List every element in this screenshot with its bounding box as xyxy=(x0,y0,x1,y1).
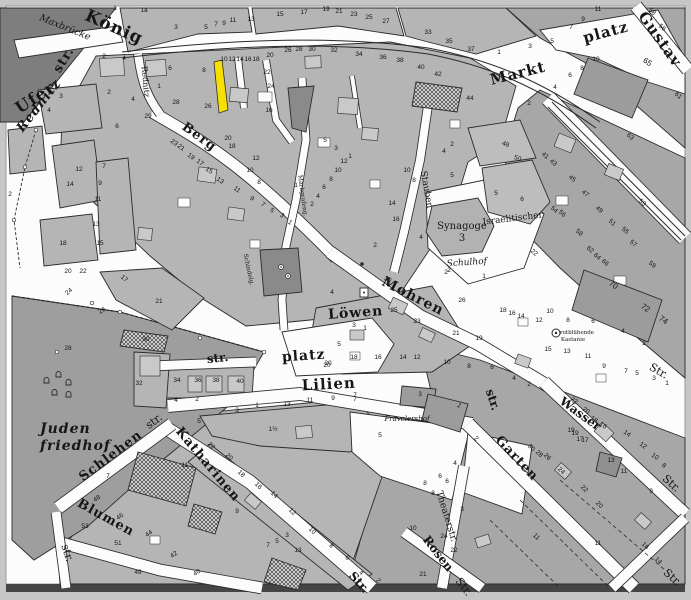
house-number: 2 xyxy=(310,201,314,208)
house-number: 11 xyxy=(95,196,102,203)
well-dot xyxy=(280,266,282,268)
courtyard xyxy=(258,92,272,102)
house-number: 13 xyxy=(294,547,302,554)
courtyard xyxy=(370,180,380,188)
church-dark-building xyxy=(260,248,302,296)
house-number: 10 xyxy=(246,167,254,174)
house-number: 17 xyxy=(576,436,584,443)
parcel-building xyxy=(100,57,125,76)
house-number: 26 xyxy=(284,47,292,54)
house-number: 19 xyxy=(567,427,575,434)
house-number: 11 xyxy=(595,540,602,547)
house-number: 22 xyxy=(450,547,458,554)
house-number: 5 xyxy=(635,370,639,377)
house-number: 13 xyxy=(283,401,291,408)
house-number: 36 xyxy=(379,54,387,61)
street-label-kastanie: Kastanie xyxy=(561,337,585,343)
house-number: 14 xyxy=(388,200,396,207)
house-number: 7 xyxy=(102,163,106,170)
house-number: 10 xyxy=(220,56,228,63)
courtyard xyxy=(450,120,460,128)
house-number: 51 xyxy=(114,540,122,547)
house-number: 22 xyxy=(263,69,271,76)
house-number: 21 xyxy=(419,571,427,578)
parcel-building xyxy=(227,207,245,221)
house-number: 1 xyxy=(482,273,486,280)
house-number: 10 xyxy=(409,525,417,532)
boundary-marker xyxy=(55,350,59,354)
house-number: 10 xyxy=(592,56,600,63)
house-number: 8 xyxy=(412,177,416,184)
lilienstrasse-west-stub xyxy=(150,362,256,366)
house-number: 2 xyxy=(195,396,199,403)
house-number: 24 xyxy=(267,83,275,90)
house-number: 17 xyxy=(300,9,308,16)
parcel-building xyxy=(338,97,359,114)
house-number: 8 xyxy=(467,363,471,370)
house-number: 23 xyxy=(413,318,421,325)
boundary-marker xyxy=(118,310,122,314)
street-label-platz: platz xyxy=(281,347,326,366)
house-number: 16 xyxy=(392,216,400,223)
house-number: 5 xyxy=(275,538,279,545)
house-number: 9 xyxy=(331,395,335,402)
parcel-building xyxy=(138,227,153,240)
courtyard xyxy=(556,196,568,205)
house-number: 18 xyxy=(59,240,67,247)
house-number: 16 xyxy=(374,354,382,361)
house-number: 1½ xyxy=(268,425,278,433)
house-number: 10 xyxy=(546,308,554,315)
house-number: 3 xyxy=(285,532,289,539)
house-number: 21 xyxy=(335,8,343,15)
house-number: 3 xyxy=(174,24,178,31)
house-number: 6 xyxy=(568,72,572,79)
house-number: 8 xyxy=(329,176,333,183)
house-number: 6 xyxy=(322,184,326,191)
street-label-synagoge: Synagoge xyxy=(437,221,487,232)
house-number: 14 xyxy=(66,181,74,188)
house-number: 16 xyxy=(265,107,273,114)
house-number: 11 xyxy=(307,397,314,404)
house-number: 2 xyxy=(8,191,12,198)
house-number: 6 xyxy=(168,65,172,72)
house-number: 12 xyxy=(75,166,83,173)
house-number: 10 xyxy=(443,359,451,366)
house-number: 7 xyxy=(106,473,110,480)
house-number: 13 xyxy=(92,221,100,228)
house-number: 7 xyxy=(353,392,357,399)
house-number: 40 xyxy=(417,64,425,71)
house-number: 12 xyxy=(228,56,236,63)
house-number: 18 xyxy=(350,354,358,361)
house-number: 2 xyxy=(373,242,377,249)
courtyard xyxy=(250,240,260,248)
house-number: 2 xyxy=(107,89,111,96)
house-number: 9 xyxy=(222,20,226,27)
boundary-marker xyxy=(34,128,38,132)
house-number: 7 xyxy=(624,368,628,375)
house-number: 4 xyxy=(122,55,126,62)
house-number: 33 xyxy=(424,29,432,36)
house-number: 16 xyxy=(244,56,252,63)
well-dot xyxy=(287,275,289,277)
house-number: 5 xyxy=(450,172,454,179)
house-number: 28 xyxy=(172,99,180,106)
street-label-3: 3 xyxy=(459,233,465,244)
house-number: 4 xyxy=(512,375,516,382)
house-number: 12 xyxy=(413,354,421,361)
house-number: 34 xyxy=(355,51,363,58)
house-number: 1 xyxy=(113,5,117,12)
house-number: 10 xyxy=(334,167,342,174)
house-number: 12 xyxy=(252,155,260,162)
house-number: 36 xyxy=(194,377,202,384)
house-number: 20 xyxy=(64,268,72,275)
house-number: 18 xyxy=(499,307,507,314)
house-number: 29 xyxy=(144,113,152,120)
house-number: 27 xyxy=(382,18,390,25)
house-number: 12 xyxy=(535,317,543,324)
marker-dot xyxy=(360,262,364,266)
house-number: 18 xyxy=(252,56,260,63)
house-number: 8 xyxy=(423,480,427,487)
house-number: 5 xyxy=(323,137,327,144)
house-number: 9 xyxy=(602,363,606,370)
house-number: 2 xyxy=(642,340,646,347)
house-number: 4 xyxy=(316,193,320,200)
house-number: 10 xyxy=(403,167,411,174)
house-number: 28 xyxy=(64,345,72,352)
house-number: 9 xyxy=(649,488,653,495)
house-number: 4 xyxy=(442,148,446,155)
house-number: 9 xyxy=(581,16,585,23)
house-number: 38 xyxy=(396,57,404,64)
house-number: 32 xyxy=(330,47,338,54)
house-number: 26 xyxy=(458,297,466,304)
house-number: 34 xyxy=(173,377,181,384)
house-number: 30 xyxy=(142,336,150,343)
house-number: 44 xyxy=(466,95,474,102)
house-number: 53 xyxy=(81,523,89,530)
city-map: 11a3579111315171921232527333537135791158… xyxy=(0,0,691,600)
house-number: 11 xyxy=(621,468,628,475)
house-number: 12 xyxy=(340,158,348,165)
house-number: 16 xyxy=(508,310,516,317)
house-number: 3 xyxy=(235,407,239,414)
boundary-marker xyxy=(262,350,266,354)
house-number: 3 xyxy=(59,93,63,100)
house-number: 35 xyxy=(445,38,453,45)
house-number: 13 xyxy=(247,16,255,23)
house-number: 37 xyxy=(467,46,475,53)
house-number: 15 xyxy=(544,346,552,353)
house-number: 5 xyxy=(378,432,382,439)
house-number: 5 xyxy=(494,190,498,197)
parcel-building xyxy=(229,87,248,103)
house-number: 1 xyxy=(363,325,367,332)
house-number: 4 xyxy=(453,460,457,467)
house-number: 2 xyxy=(527,100,531,107)
house-number: 8 xyxy=(566,317,570,324)
house-number: 21 xyxy=(155,298,163,305)
house-number: 2 xyxy=(444,269,448,276)
house-number: 7 xyxy=(214,21,218,28)
house-number: 2 xyxy=(102,53,106,60)
house-number: 1 xyxy=(255,402,259,409)
house-number: 6 xyxy=(115,123,119,130)
boundary-marker xyxy=(90,301,94,305)
house-number: 18 xyxy=(228,143,236,150)
house-number: 11 xyxy=(230,17,237,24)
parcel-building xyxy=(140,356,160,376)
chestnut-tree-dot xyxy=(555,332,557,334)
house-number: 7 xyxy=(569,24,573,31)
boundary-marker xyxy=(12,218,16,222)
house-number: 9 xyxy=(98,180,102,187)
house-number: 28 xyxy=(295,46,303,53)
house-number: 1 xyxy=(497,49,501,56)
courtyard xyxy=(596,374,606,382)
house-number: 1 xyxy=(157,83,161,90)
parcel-building xyxy=(350,330,364,340)
house-number: 2 xyxy=(527,381,531,388)
house-number: 11 xyxy=(182,462,189,469)
house-number: 8 xyxy=(257,179,261,186)
house-number: 3 xyxy=(334,145,338,152)
house-number: 25 xyxy=(365,14,373,21)
courtyard xyxy=(150,536,160,544)
house-number: 3 xyxy=(460,506,464,513)
monument-dot xyxy=(363,292,365,294)
street-label-lilien: Lilien xyxy=(301,374,356,395)
house-number: 9 xyxy=(235,508,239,515)
house-number: 25 xyxy=(390,307,398,314)
house-number: 20 xyxy=(266,52,274,59)
house-number: 6 xyxy=(445,478,449,485)
house-number: 5 xyxy=(197,418,201,425)
street-label-fravelershof: Fravelershof xyxy=(383,415,431,423)
map-scan-page: 11a3579111315171921232527333537135791158… xyxy=(0,0,691,600)
house-number: 6 xyxy=(490,364,494,371)
house-number: 42 xyxy=(434,71,442,78)
house-number: 14 xyxy=(236,56,244,63)
house-number: 11 xyxy=(585,353,592,360)
house-number: 30 xyxy=(308,46,316,53)
house-number: 15 xyxy=(276,11,284,18)
house-number: 49 xyxy=(134,569,142,576)
parcel-building xyxy=(362,127,379,140)
house-number: 8 xyxy=(202,67,206,74)
house-number: 3 xyxy=(528,43,532,50)
house-number: 4 xyxy=(174,397,178,404)
house-number: 32 xyxy=(135,380,143,387)
street-label-friedhof: friedhof xyxy=(39,438,113,454)
parcel-building xyxy=(305,56,321,69)
house-number: 5 xyxy=(337,341,341,348)
boundary-marker xyxy=(198,336,202,340)
house-number: 4 xyxy=(47,107,51,114)
house-number: 5 xyxy=(204,24,208,31)
house-number: 38 xyxy=(212,377,220,384)
house-number: 14 xyxy=(517,313,525,320)
house-number: 5 xyxy=(550,38,554,45)
house-number: 4 xyxy=(553,84,557,91)
house-number: 8 xyxy=(580,65,584,72)
house-number: 7 xyxy=(266,542,270,549)
house-number: 4 xyxy=(419,234,423,241)
courtyard xyxy=(178,198,190,207)
house-number: 6 xyxy=(591,318,595,325)
house-number: 21 xyxy=(452,330,460,337)
house-number: 6 xyxy=(520,196,524,203)
street-label-rotbl-hende: rotblühende xyxy=(560,330,594,336)
house-number: 13 xyxy=(607,457,615,464)
house-number: 1 xyxy=(665,380,669,387)
house-number: 11 xyxy=(595,6,602,13)
house-number: 4 xyxy=(621,328,625,335)
house-number: 3 xyxy=(418,391,422,398)
street-label-juden: Juden xyxy=(37,421,91,437)
house-number: 14 xyxy=(399,354,407,361)
parcel-building xyxy=(296,425,313,438)
block-ufer-4 xyxy=(40,214,98,266)
house-number: 3 xyxy=(352,322,356,329)
boundary-marker xyxy=(23,165,27,169)
house-number: 26 xyxy=(204,103,212,110)
house-number: 13 xyxy=(563,348,571,355)
house-number: 22 xyxy=(79,268,87,275)
house-number: 40 xyxy=(236,378,244,385)
house-number: 1 xyxy=(348,153,352,160)
house-number: 4 xyxy=(330,289,334,296)
house-number: 15 xyxy=(96,240,104,247)
house-number: 6 xyxy=(438,473,442,480)
house-number: 19 xyxy=(475,335,483,342)
house-number: 2 xyxy=(450,141,454,148)
city-map-container: 11a3579111315171921232527333537135791158… xyxy=(0,0,691,600)
house-number: 19 xyxy=(322,6,330,13)
house-number: 20 xyxy=(224,135,232,142)
house-number: 23 xyxy=(350,11,358,18)
house-number: 1a xyxy=(140,7,148,14)
street-label-str-: str. xyxy=(206,350,229,366)
house-number: 4 xyxy=(131,96,135,103)
